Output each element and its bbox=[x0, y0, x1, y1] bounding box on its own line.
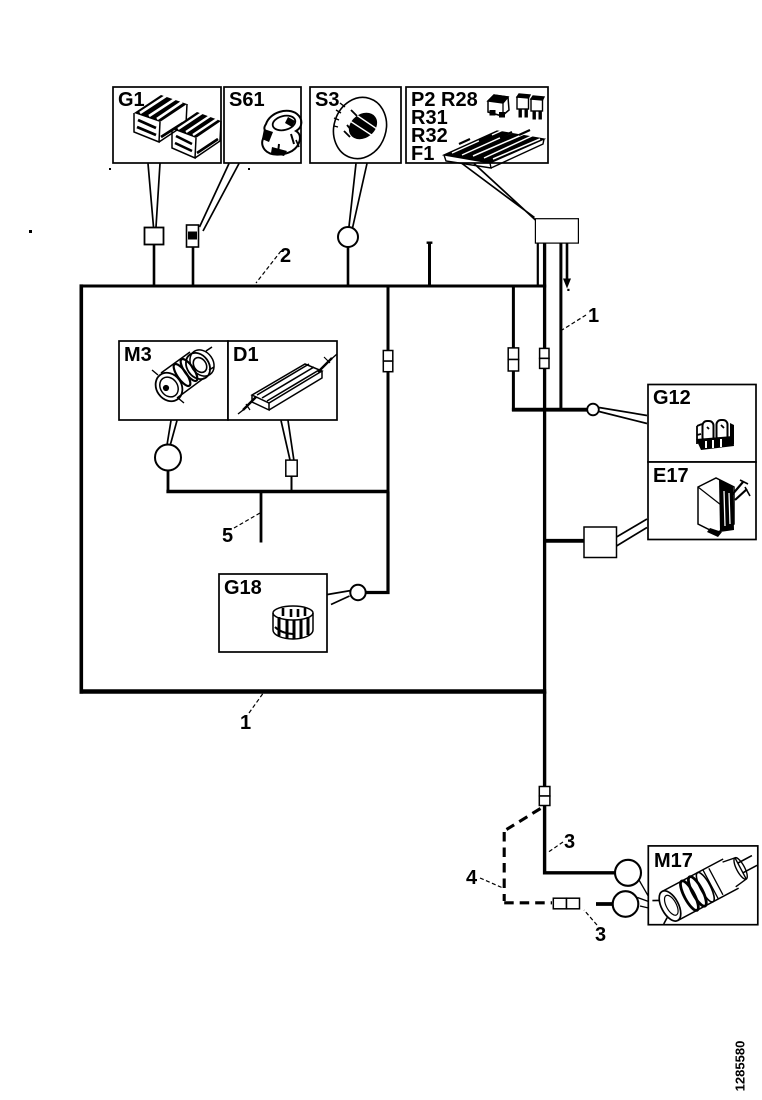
svg-text:4: 4 bbox=[466, 867, 478, 889]
svg-text:G18: G18 bbox=[224, 577, 262, 599]
svg-text:D1: D1 bbox=[233, 344, 259, 366]
svg-text:S3: S3 bbox=[315, 89, 339, 111]
svg-text:G12: G12 bbox=[653, 387, 691, 409]
svg-text:M17: M17 bbox=[654, 850, 693, 872]
svg-text:5: 5 bbox=[222, 525, 233, 547]
svg-text:1: 1 bbox=[588, 305, 599, 327]
svg-text:3: 3 bbox=[564, 831, 575, 853]
svg-text:1285580: 1285580 bbox=[733, 1041, 748, 1092]
svg-text:G1: G1 bbox=[118, 89, 145, 111]
svg-text:3: 3 bbox=[595, 924, 606, 946]
svg-text:E17: E17 bbox=[653, 465, 689, 487]
svg-text:S61: S61 bbox=[229, 89, 265, 111]
svg-text:F1: F1 bbox=[411, 143, 434, 165]
svg-text:1: 1 bbox=[240, 712, 251, 734]
svg-text:M3: M3 bbox=[124, 344, 152, 366]
svg-text:2: 2 bbox=[280, 245, 291, 267]
